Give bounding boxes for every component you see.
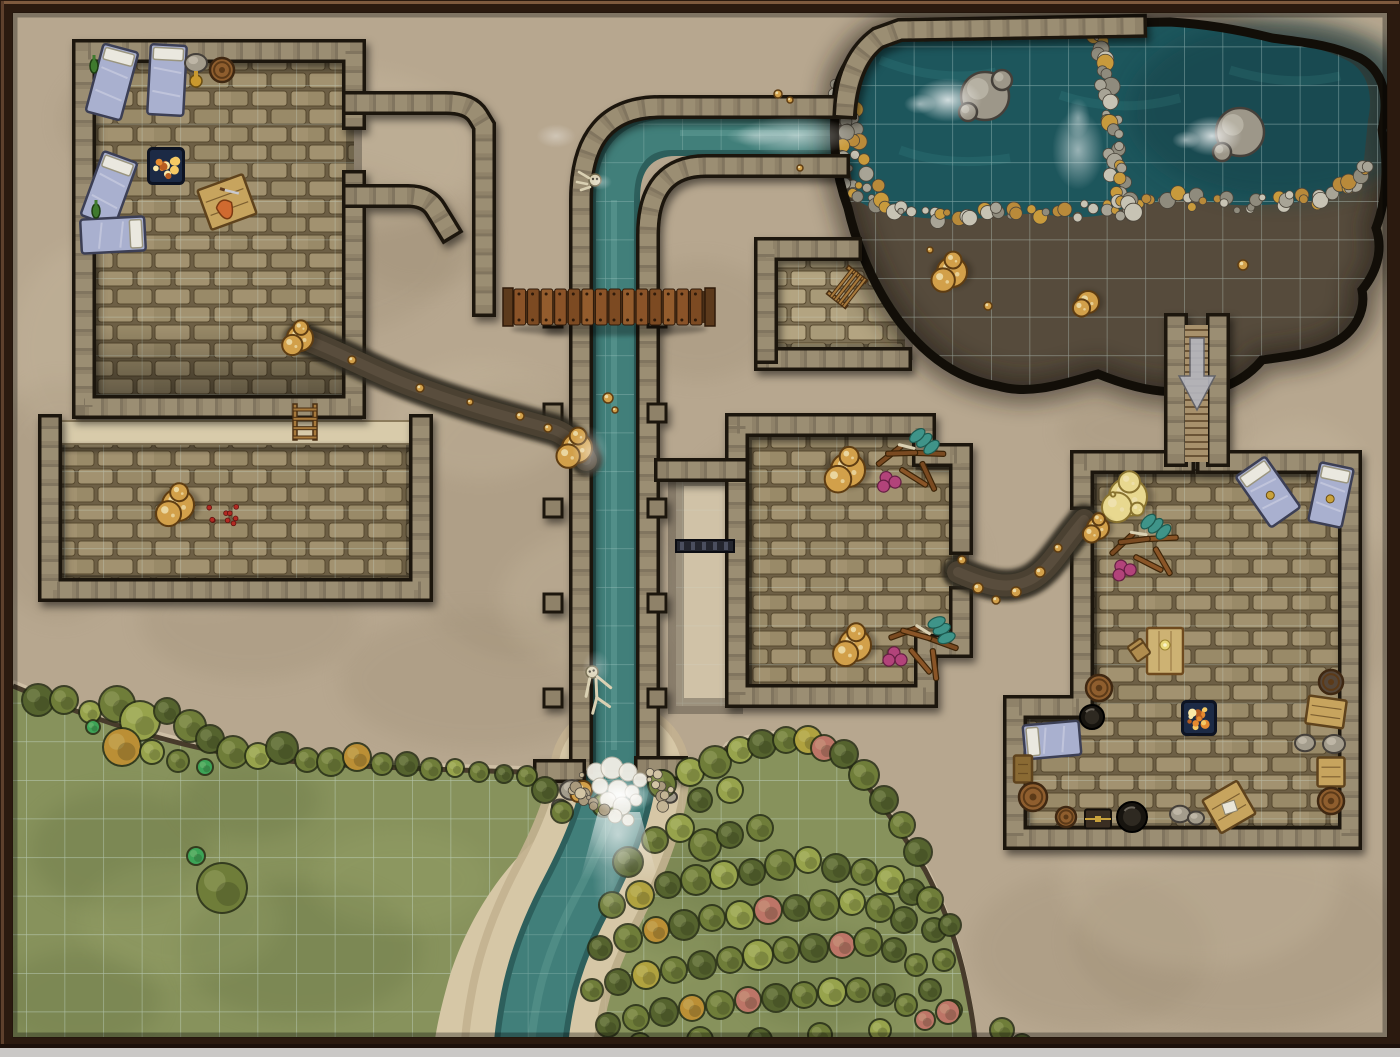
tree <box>468 761 490 783</box>
mushroom <box>1035 567 1045 577</box>
tree <box>186 846 206 866</box>
barrel <box>1056 807 1076 827</box>
cooking-pot <box>1080 705 1104 729</box>
mushroom <box>927 247 933 253</box>
wall-pilaster <box>648 689 666 707</box>
light-glow <box>592 840 632 920</box>
mushroom <box>612 407 618 413</box>
tree <box>622 1004 650 1032</box>
wall-pilaster <box>544 594 562 612</box>
tree <box>761 983 791 1013</box>
fire-pit <box>149 149 184 184</box>
tree <box>85 719 101 735</box>
tree <box>642 916 670 944</box>
tree <box>709 860 739 890</box>
tree <box>828 931 856 959</box>
light-glow <box>904 94 936 114</box>
light-glow <box>726 126 786 146</box>
tree <box>342 742 372 772</box>
ledge <box>47 421 422 444</box>
light-glow <box>1066 98 1090 138</box>
barrel <box>1319 670 1343 694</box>
tree <box>914 1009 936 1031</box>
light-glow <box>1172 131 1200 149</box>
tree <box>660 956 688 984</box>
tree <box>550 800 574 824</box>
tree <box>196 758 214 776</box>
wooden-table <box>1147 628 1183 674</box>
tree <box>790 981 818 1009</box>
mushroom <box>603 393 613 403</box>
tree <box>918 978 942 1002</box>
tree <box>808 889 840 921</box>
tree <box>587 935 613 961</box>
wall-pilaster <box>544 499 562 517</box>
tree <box>580 978 604 1002</box>
mushroom <box>544 424 552 432</box>
bedroll <box>80 216 146 253</box>
rock <box>185 54 207 72</box>
bedroll <box>1023 721 1082 760</box>
boulder <box>992 70 1012 90</box>
tree <box>716 776 744 804</box>
barrel <box>1019 783 1047 811</box>
mushroom <box>1011 587 1021 597</box>
tree <box>932 948 956 972</box>
barrel <box>1086 675 1112 701</box>
tree <box>370 752 394 776</box>
barrel <box>210 58 234 82</box>
mushroom <box>958 556 966 564</box>
bedroll <box>147 44 187 116</box>
mushroom <box>973 583 983 593</box>
treasure-chest <box>1085 810 1111 829</box>
tree <box>799 933 829 963</box>
tree <box>698 904 726 932</box>
wall-pilaster <box>648 404 666 422</box>
tree <box>196 862 248 914</box>
rock <box>1323 735 1345 753</box>
rock <box>1170 806 1190 822</box>
bridge <box>503 288 715 336</box>
tree <box>848 759 880 791</box>
mushroom <box>787 97 793 103</box>
mushroom <box>348 356 356 364</box>
crate <box>1305 695 1347 728</box>
tree <box>49 685 79 715</box>
light-glow <box>588 174 612 190</box>
tree <box>764 849 796 881</box>
tree <box>139 739 165 765</box>
mushroom <box>1054 544 1062 552</box>
tree <box>903 837 933 867</box>
tree <box>872 983 896 1007</box>
tree <box>904 953 928 977</box>
tree <box>772 936 800 964</box>
wall-pilaster <box>648 594 666 612</box>
tree <box>850 858 878 886</box>
tree <box>869 785 899 815</box>
tree <box>746 814 774 842</box>
tree <box>888 811 916 839</box>
tree <box>687 950 717 980</box>
tree <box>838 888 866 916</box>
tree <box>687 787 713 813</box>
mushroom <box>992 596 1000 604</box>
tree <box>604 968 632 996</box>
tree <box>678 994 706 1022</box>
tree <box>631 960 661 990</box>
map-canvas[interactable] <box>0 0 1400 1057</box>
tree <box>716 821 744 849</box>
mushroom <box>467 399 473 405</box>
tree <box>668 909 700 941</box>
tree <box>845 977 871 1003</box>
tree <box>716 946 744 974</box>
tree <box>782 894 810 922</box>
tree <box>935 999 961 1025</box>
tree <box>938 913 962 937</box>
light-glow <box>536 124 576 148</box>
cave <box>828 20 1400 392</box>
tree <box>916 886 944 914</box>
tree <box>166 749 190 773</box>
rock <box>1188 811 1204 824</box>
wall-pilaster <box>544 689 562 707</box>
tree <box>890 906 918 934</box>
tree <box>734 986 762 1014</box>
fire-pit <box>1183 702 1216 735</box>
mushroom <box>797 165 803 171</box>
tree <box>821 853 851 883</box>
cooking-pot <box>1117 802 1147 832</box>
tree <box>747 729 777 759</box>
tree <box>613 923 643 953</box>
mushroom <box>1238 260 1248 270</box>
tree <box>881 937 907 963</box>
tree <box>294 747 320 773</box>
tree <box>794 846 822 874</box>
tree <box>853 927 883 957</box>
tree <box>419 757 443 781</box>
tree <box>649 997 679 1027</box>
tree <box>705 990 735 1020</box>
mushroom <box>774 90 782 98</box>
tree <box>738 858 766 886</box>
tree <box>680 864 712 896</box>
tree <box>654 871 682 899</box>
wall-pilaster <box>648 499 666 517</box>
crate <box>1014 756 1032 783</box>
mushroom <box>516 412 524 420</box>
barrel <box>1318 788 1344 814</box>
tree <box>316 747 346 777</box>
rock <box>1295 735 1315 751</box>
light-glow <box>582 650 610 686</box>
tree <box>531 776 559 804</box>
tree <box>753 895 783 925</box>
tree <box>102 727 142 767</box>
mushroom <box>984 302 992 310</box>
portcullis-gate <box>676 540 734 552</box>
tree <box>742 939 774 971</box>
tree <box>817 977 847 1007</box>
tree <box>494 764 514 784</box>
tree <box>394 751 420 777</box>
tree <box>445 758 465 778</box>
light-glow <box>572 426 608 478</box>
tree <box>725 900 755 930</box>
tree <box>265 731 299 765</box>
tree <box>894 993 918 1017</box>
crate <box>1318 758 1345 787</box>
mushroom <box>416 384 424 392</box>
battle-map-screenshot <box>0 0 1400 1057</box>
